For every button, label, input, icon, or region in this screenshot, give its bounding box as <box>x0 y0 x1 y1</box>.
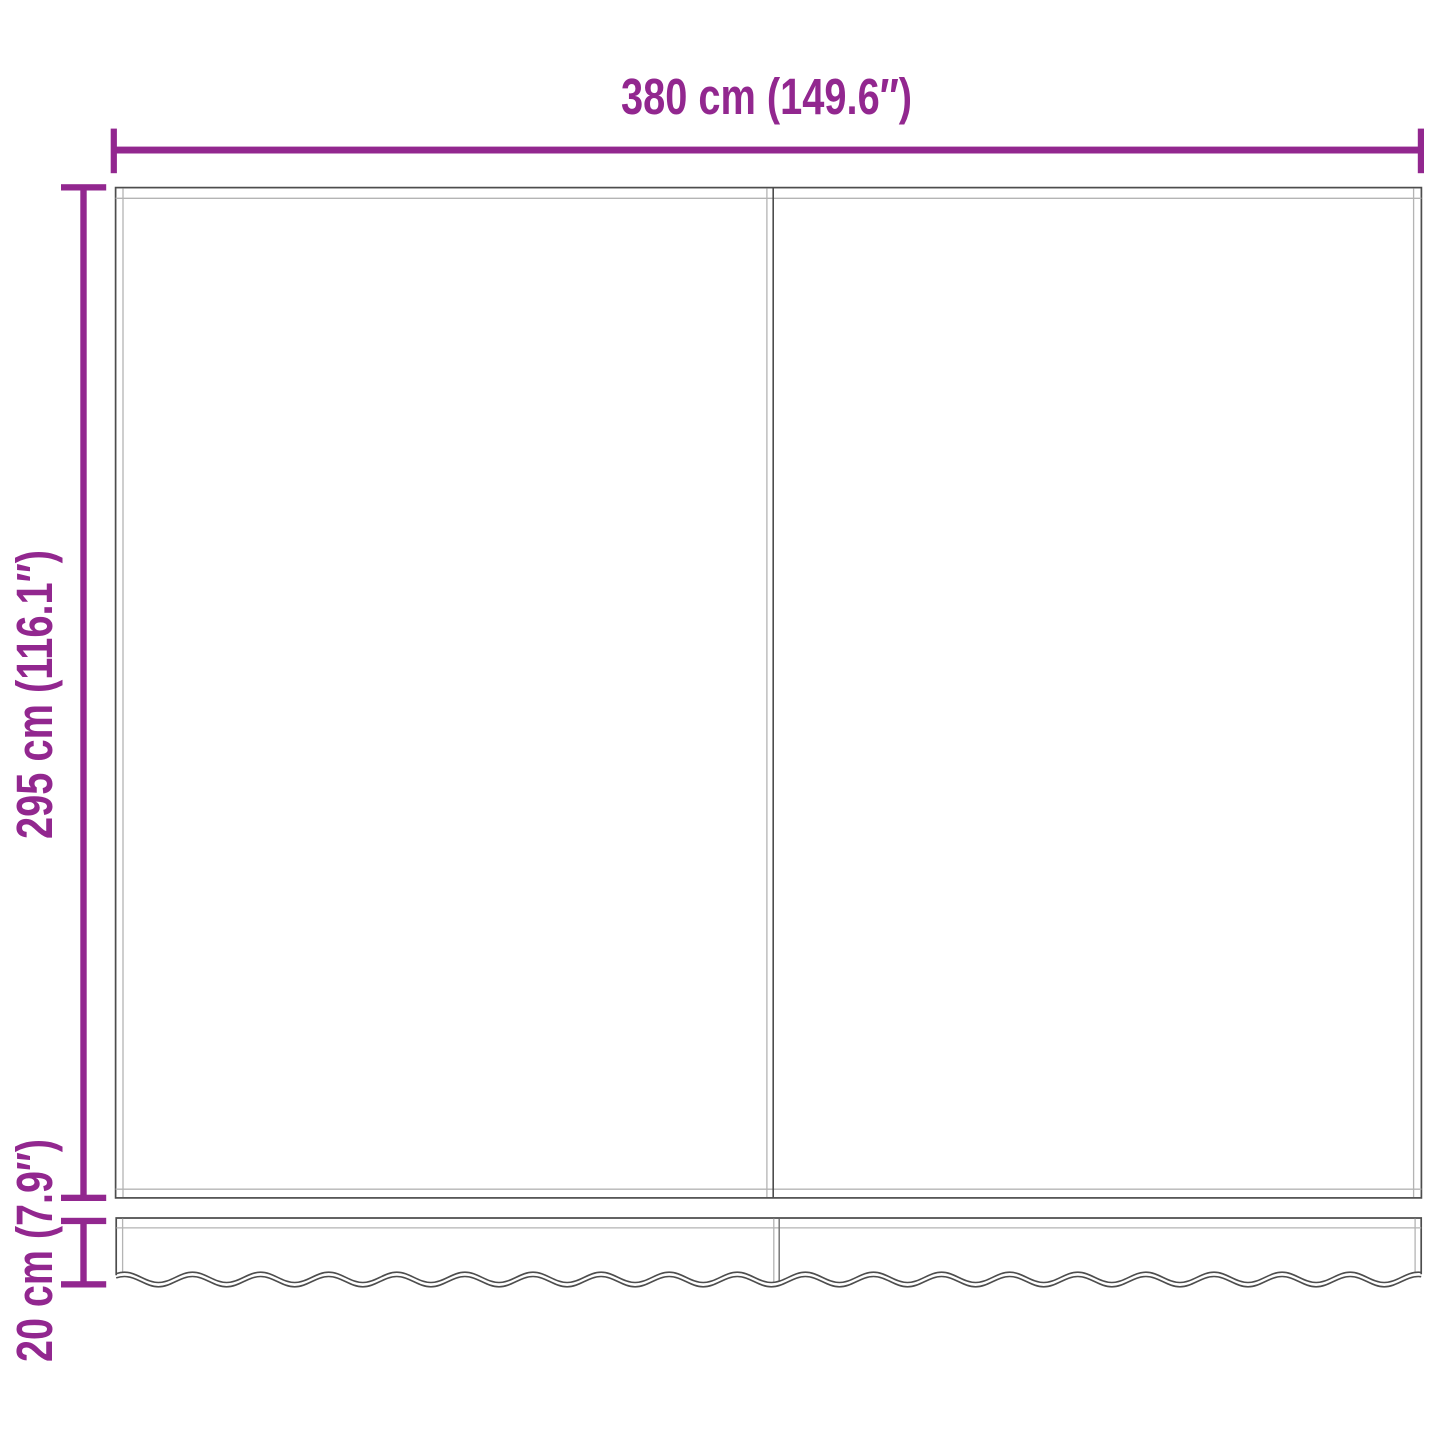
svg-text:380 cm (149.6″): 380 cm (149.6″) <box>621 68 912 125</box>
svg-text:295 cm (116.1″): 295 cm (116.1″) <box>6 550 63 839</box>
svg-text:20 cm (7.9″): 20 cm (7.9″) <box>6 1139 63 1362</box>
